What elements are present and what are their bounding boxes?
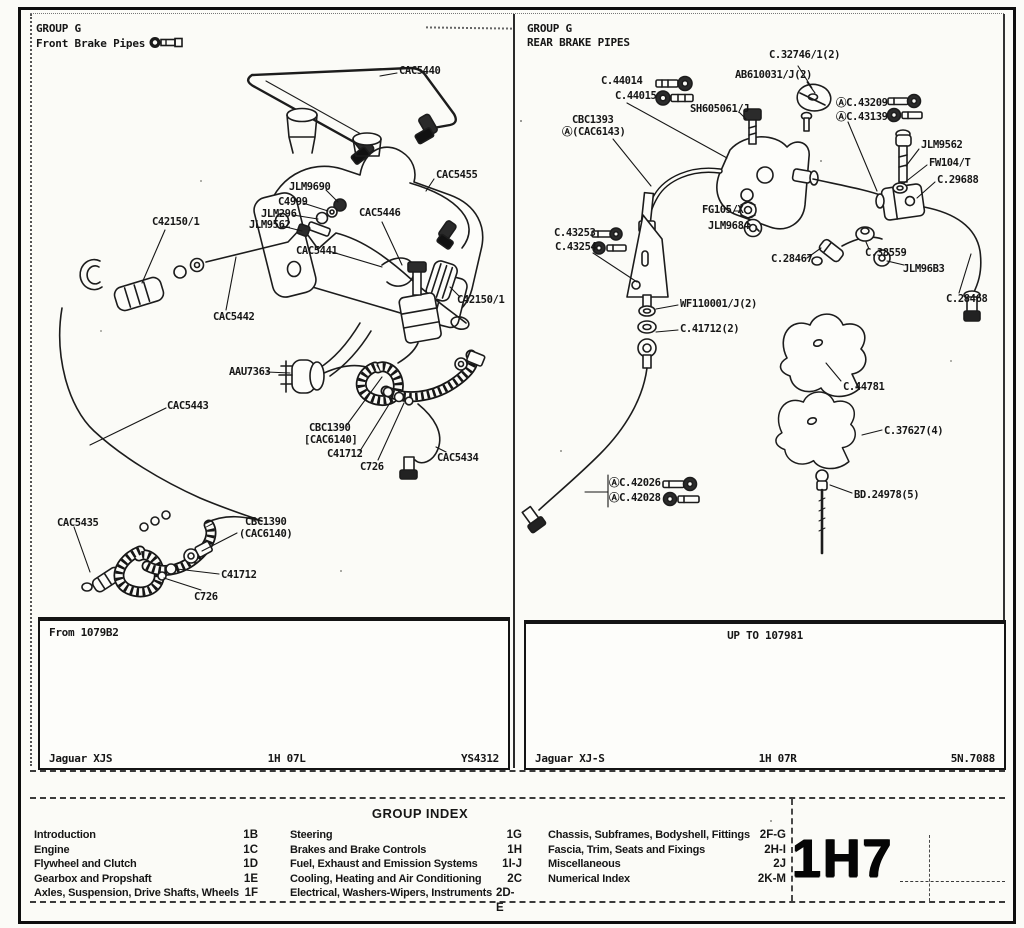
rear-long-pipe-drawing: [519, 368, 647, 533]
bolt-icon: [663, 478, 697, 491]
part-label-c28467: C.28467: [771, 254, 812, 265]
page-bottom-rule: [30, 770, 1005, 772]
pipe-cac5434-drawing: [400, 404, 440, 479]
group-index-code: 2F-G: [760, 828, 786, 843]
part-label-cac5440: CAC5440: [399, 66, 440, 77]
bolt-icon: [592, 228, 622, 240]
clip-c37627-drawing: [776, 392, 855, 469]
part-label-c41712-lower: C41712: [221, 570, 257, 581]
group-index-column-3: Chassis, Subframes, Bodyshell, Fittings2…: [548, 828, 786, 886]
group-index-code: 1E: [244, 872, 258, 887]
washer-stack-drawing: [638, 306, 656, 368]
code-box-rule: [900, 881, 1005, 882]
page-code: 1H7: [792, 828, 893, 890]
group-index-code: 1D: [243, 857, 258, 872]
part-label-c42026: ⒶC.42026: [609, 478, 661, 489]
group-index-label: Introduction: [34, 828, 96, 843]
group-index-entry: Steering1G: [290, 828, 522, 843]
group-index-entry: Engine1C: [34, 843, 258, 858]
bolt-icon: [888, 95, 921, 108]
group-index-label: Electrical, Washers-Wipers, Instruments: [290, 886, 492, 915]
part-label-c726-upper: C726: [360, 462, 384, 473]
part-label-jlm9690: JLM9690: [289, 182, 330, 193]
group-index-code: 1H: [507, 843, 522, 858]
rear-page-title: REAR BRAKE PIPES: [527, 36, 630, 50]
group-index-label: Fascia, Trim, Seats and Fixings: [548, 843, 705, 858]
union-drawing: [813, 179, 925, 221]
group-index-entry: Flywheel and Clutch1D: [34, 857, 258, 872]
part-label-cac5434: CAC5434: [437, 453, 478, 464]
page-top-edge: [30, 13, 1004, 14]
part-label-cac5442: CAC5442: [213, 312, 254, 323]
part-label-c37627: C.37627(4): [884, 426, 943, 437]
part-label-cac6143: Ⓐ(CAC6143): [562, 127, 625, 138]
front-sheet-number: 1H 07L: [268, 752, 306, 765]
group-index-code: 1I-J: [502, 857, 522, 872]
part-label-cac5446: CAC5446: [359, 208, 400, 219]
group-index-entry: Electrical, Washers-Wipers, Instruments2…: [290, 886, 522, 915]
rear-group-label: GROUP G: [527, 22, 630, 36]
part-label-wf110001: WF110001/J(2): [680, 299, 757, 310]
group-index-label: Flywheel and Clutch: [34, 857, 137, 872]
front-plate-ref: YS4312: [461, 752, 499, 765]
part-label-c44015: C.44015: [615, 91, 656, 102]
part-label-cbc1390-upper: CBC1390: [309, 423, 350, 434]
front-footer-box: From 1079B2 Jaguar XJS 1H 07L YS4312: [38, 617, 510, 770]
part-label-aau7363: AAU7363: [229, 367, 270, 378]
part-label-jlm9562: JLM9562: [249, 220, 290, 231]
part-label-c38559: C.38559: [865, 248, 906, 259]
pipe-cac5443-drawing: [60, 308, 262, 521]
part-label-c726-lower: C726: [194, 592, 218, 603]
group-index-entry: Introduction1B: [34, 828, 258, 843]
group-index-code: 2D-E: [496, 886, 522, 915]
group-index-label: Axles, Suspension, Drive Shafts, Wheels: [34, 886, 239, 901]
part-label-cac6140-lower: (CAC6140): [239, 529, 292, 540]
part-label-fw104: FW104/T: [929, 158, 970, 169]
group-index-entry: Axles, Suspension, Drive Shafts, Wheels1…: [34, 886, 258, 901]
washer-c38559-drawing: [856, 227, 874, 241]
group-index-label: Steering: [290, 828, 332, 843]
rear-footer-box: UP TO 107981 Jaguar XJ-S 1H 07R 5N.7088: [524, 620, 1006, 770]
group-index-entry: Chassis, Subframes, Bodyshell, Fittings2…: [548, 828, 786, 843]
group-index-entry: Cooling, Heating and Air Conditioning2C: [290, 872, 522, 887]
part-label-sh605061: SH605061/J: [690, 104, 749, 115]
part-label-c43139: ⒶC.43139: [836, 112, 888, 123]
group-index-code: 1G: [507, 828, 522, 843]
washer-fw104-drawing: [893, 183, 907, 193]
front-page-header: GROUP G Front Brake Pipes: [36, 22, 184, 50]
brake-pipe-icon: [148, 36, 184, 49]
banjo-bolt-icon: [656, 91, 693, 105]
group-index-code: 1B: [243, 828, 258, 843]
group-index-code: 1F: [245, 886, 258, 901]
part-label-c43254: C.43254: [555, 242, 596, 253]
part-label-jlm9684: JLM9684: [708, 221, 749, 232]
part-label-c4999: C4999: [278, 197, 308, 208]
part-label-cac5441: CAC5441: [296, 246, 337, 257]
part-label-jlm9562-rear: JLM9562: [921, 140, 962, 151]
banjo-bolt-icon: [664, 493, 700, 506]
part-label-fg105: FG105/X: [702, 205, 743, 216]
part-label-c28468: C.28468: [946, 294, 987, 305]
part-label-c32746: C.32746/1(2): [769, 50, 840, 61]
group-index-entry: Brakes and Brake Controls1H: [290, 843, 522, 858]
group-index-code: 2C: [507, 872, 522, 887]
hose-cbc1390-lower-drawing: [82, 511, 262, 594]
part-label-c44014: C.44014: [601, 76, 642, 87]
group-index-entry: Fascia, Trim, Seats and Fixings2H-I: [548, 843, 786, 858]
rear-applicability: UP TO 107981: [526, 629, 1004, 642]
front-model-name: Jaguar XJS: [49, 752, 112, 765]
group-index-column-1: Introduction1B Engine1C Flywheel and Clu…: [34, 828, 258, 901]
group-index-label: Numerical Index: [548, 872, 630, 887]
group-index-title: GROUP INDEX: [130, 806, 710, 821]
catalogue-page: GROUP G Front Brake Pipes GROUP G REAR B…: [0, 0, 1024, 928]
rear-plate-ref: 5N.7088: [951, 752, 995, 765]
rear-model-name: Jaguar XJ-S: [535, 752, 605, 765]
group-index-entry: Miscellaneous2J: [548, 857, 786, 872]
group-index-label: Chassis, Subframes, Bodyshell, Fittings: [548, 828, 750, 843]
part-label-c43209: ⒶC.43209: [836, 98, 888, 109]
pipe-union-fitting: [415, 113, 439, 144]
part-label-jlm96b3: JLM96B3: [903, 264, 944, 275]
banjo-bolt-icon: [888, 109, 923, 122]
banjo-bolt-icon: [593, 242, 626, 254]
group-index-code: 2J: [773, 857, 786, 872]
front-page-title: Front Brake Pipes: [36, 37, 145, 50]
part-label-c42150-left: C42150/1: [152, 217, 199, 228]
bolt-jlm9562-drawing: [896, 130, 911, 182]
rear-page-header: GROUP G REAR BRAKE PIPES: [527, 22, 630, 49]
part-label-cac5455: CAC5455: [436, 170, 477, 181]
part-label-cac5435: CAC5435: [57, 518, 98, 529]
group-index-code: 1C: [243, 843, 258, 858]
group-index-entry: Fuel, Exhaust and Emission Systems1I-J: [290, 857, 522, 872]
group-index-code: 2H-I: [764, 843, 786, 858]
bolt-icon: [656, 77, 692, 91]
part-label-c29688: C.29688: [937, 175, 978, 186]
group-index-entry: Numerical Index2K-M: [548, 872, 786, 887]
group-index: GROUP INDEX Introduction1B Engine1C Flyw…: [30, 797, 792, 901]
part-label-c42028: ⒶC.42028: [609, 493, 661, 504]
rear-sheet-number: 1H 07R: [759, 752, 797, 765]
group-index-label: Cooling, Heating and Air Conditioning: [290, 872, 481, 887]
group-index-label: Miscellaneous: [548, 857, 621, 872]
part-label-bd24978: BD.24978(5): [854, 490, 919, 501]
screw-bd24978-drawing: [816, 470, 828, 553]
group-index-code: 2K-M: [758, 872, 786, 887]
part-label-c44781: C.44781: [843, 382, 884, 393]
front-applicability: From 1079B2: [49, 626, 119, 639]
part-label-c41712-rear: C.41712(2): [680, 324, 739, 335]
part-label-cac5443: CAC5443: [167, 401, 208, 412]
part-label-c42150-right: C42150/1: [457, 295, 504, 306]
group-index-entry: Gearbox and Propshaft1E: [34, 872, 258, 887]
part-label-c41712-upper: C41712: [327, 449, 363, 460]
leader-lines: [74, 73, 460, 590]
group-index-label: Fuel, Exhaust and Emission Systems: [290, 857, 478, 872]
group-index-label: Engine: [34, 843, 69, 858]
part-label-cbc1393: CBC1393: [572, 115, 613, 126]
part-label-c43253: C.43253: [554, 228, 595, 239]
group-index-label: Brakes and Brake Controls: [290, 843, 426, 858]
bracket-drawing: [627, 193, 668, 307]
code-box-divider: [929, 835, 930, 901]
part-label-ab610031: AB610031/J(2): [735, 70, 812, 81]
group-index-label: Gearbox and Propshaft: [34, 872, 151, 887]
group-index-column-2: Steering1G Brakes and Brake Controls1H F…: [290, 828, 522, 916]
part-label-cac6140-upper: [CAC6140]: [304, 435, 357, 446]
part-label-cbc1390-lower: CBC1390: [245, 517, 286, 528]
front-group-label: GROUP G: [36, 22, 184, 36]
